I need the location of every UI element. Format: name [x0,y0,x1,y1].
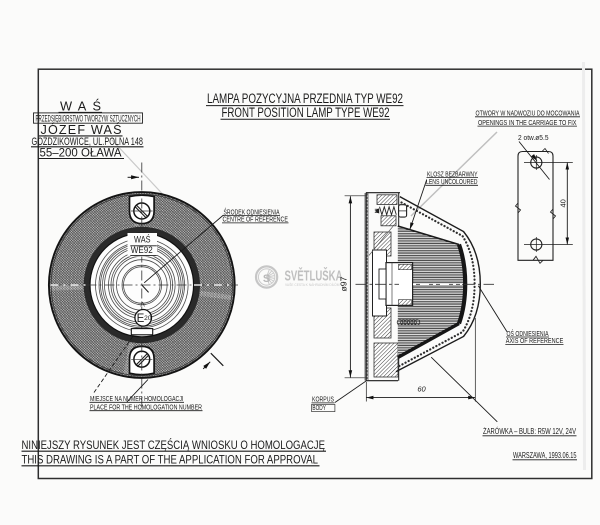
svg-text:55–200 OŁAWA: 55–200 OŁAWA [40,145,123,159]
svg-text:JÓZEF WAŚ: JÓZEF WAŚ [41,122,122,137]
svg-text:S: S [263,273,270,285]
svg-text:NINIEJSZY RYSUNEK JEST CZĘŚCIĄ: NINIEJSZY RYSUNEK JEST CZĘŚCIĄ WNIOSKU O… [22,437,326,452]
svg-text:LENS UNCOLOURED: LENS UNCOLOURED [426,177,478,186]
svg-text:VAŠE CESTA K NÁHRADNÍM DÍLŮM: VAŠE CESTA K NÁHRADNÍM DÍLŮM [285,282,340,287]
svg-text:CENTRE OF REFERENCE: CENTRE OF REFERENCE [223,215,289,224]
svg-text:WE92: WE92 [131,245,153,255]
svg-text:2 otw.ø5.5: 2 otw.ø5.5 [518,135,549,142]
svg-text:OPENINGS IN THE CARRIAGE TO FI: OPENINGS IN THE CARRIAGE TO FIX [478,118,577,127]
svg-text:LAMPA POZYCYJNA PRZEDNIA TYP W: LAMPA POZYCYJNA PRZEDNIA TYP WE92 [207,91,403,106]
svg-text:WAŚ: WAŚ [134,234,151,246]
svg-text:AXIS OF REFERENCE: AXIS OF REFERENCE [506,336,564,345]
svg-text:A: A [140,302,145,309]
svg-text:60: 60 [417,385,426,394]
svg-text:ø97: ø97 [339,276,348,292]
svg-text:40: 40 [559,199,568,207]
svg-text:THIS DRAWING IS A PART OF THE: THIS DRAWING IS A PART OF THE APPLICATIO… [22,452,319,466]
svg-text:WARSZAWA, 1993.06.15: WARSZAWA, 1993.06.15 [513,451,577,460]
svg-text:20: 20 [144,315,152,322]
svg-text:OTWORY W NADWOZIU DO MOCOWANIA: OTWORY W NADWOZIU DO MOCOWANIA [476,109,581,118]
svg-text:PLACE FOR THE HOMOLOGATION NUM: PLACE FOR THE HOMOLOGATION NUMBER [90,402,202,411]
svg-text:ŻARÓWKA – BULB: R5W 12V, 24V: ŻARÓWKA – BULB: R5W 12V, 24V [483,427,576,436]
svg-text:WAŚ: WAŚ [60,98,101,113]
svg-text:FRONT POSITION LAMP TYPE WE92: FRONT POSITION LAMP TYPE WE92 [222,105,390,120]
